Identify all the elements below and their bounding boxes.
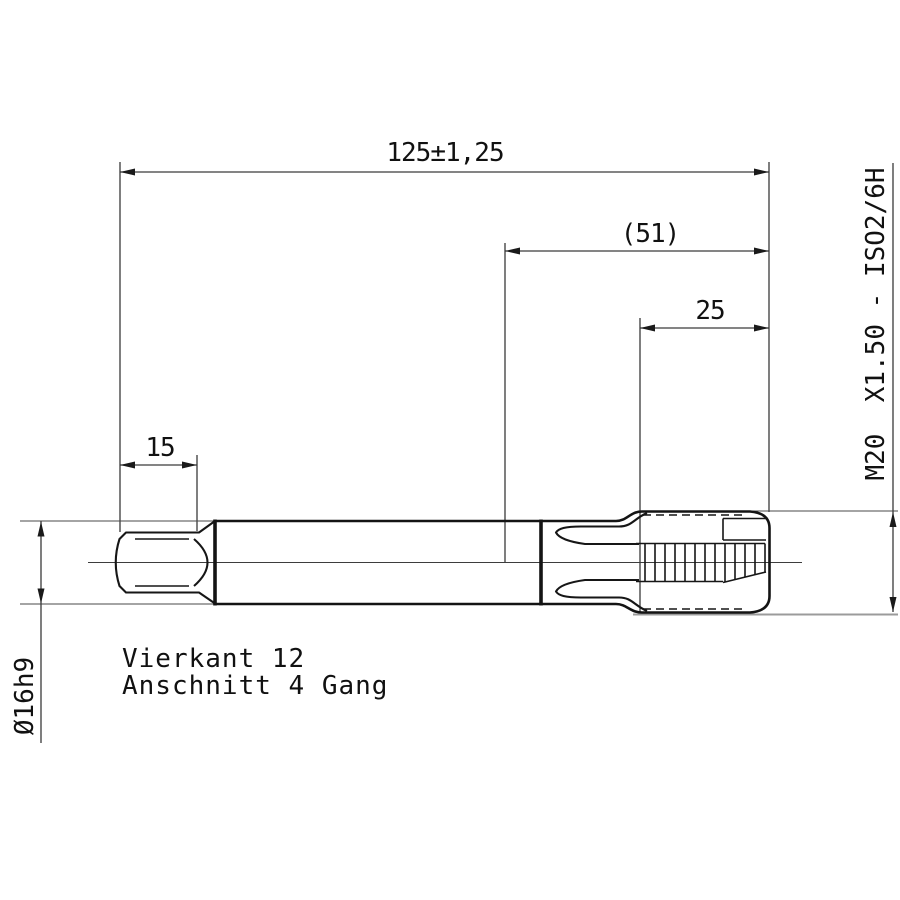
dimension-arrowheads xyxy=(38,169,897,613)
arrow-square-right xyxy=(182,462,197,469)
shank-diameter-label: Ø16h9 xyxy=(10,657,40,735)
arrow-square-left xyxy=(120,462,135,469)
arrow-overall-left xyxy=(120,169,135,176)
arrow-shankdia-top xyxy=(38,522,45,537)
thread-length-label: 25 xyxy=(695,296,724,326)
head-length-label: (51) xyxy=(621,219,680,249)
arrow-shankdia-bottom xyxy=(38,589,45,604)
flute-lower xyxy=(556,580,647,611)
note-chamfer-lead: Anschnitt 4 Gang xyxy=(122,671,388,701)
arrow-thread-right xyxy=(754,325,769,332)
note-block: Vierkant 12 Anschnitt 4 Gang xyxy=(122,644,388,701)
drawing-canvas: 125±1,25 (51) 25 15 Ø16h9 M20 X1.50 - IS… xyxy=(0,0,900,900)
square-length-label: 15 xyxy=(145,433,174,463)
flute-upper xyxy=(556,513,647,544)
overall-length-label: 125±1,25 xyxy=(386,138,503,168)
arrow-head-right xyxy=(754,248,769,255)
note-square-size: Vierkant 12 xyxy=(122,644,305,674)
arrow-head-left xyxy=(505,248,520,255)
chamfer-relief-box xyxy=(723,519,767,541)
arrow-threaddia-top xyxy=(890,512,897,527)
arrow-overall-right xyxy=(754,169,769,176)
extension-lines xyxy=(20,162,898,615)
arrow-thread-left xyxy=(640,325,655,332)
tap-technical-drawing: 125±1,25 (51) 25 15 Ø16h9 M20 X1.50 - IS… xyxy=(0,0,900,900)
arrow-threaddia-bottom xyxy=(890,597,897,612)
thread-designation-label: M20 X1.50 - ISO2/6H xyxy=(861,167,891,480)
